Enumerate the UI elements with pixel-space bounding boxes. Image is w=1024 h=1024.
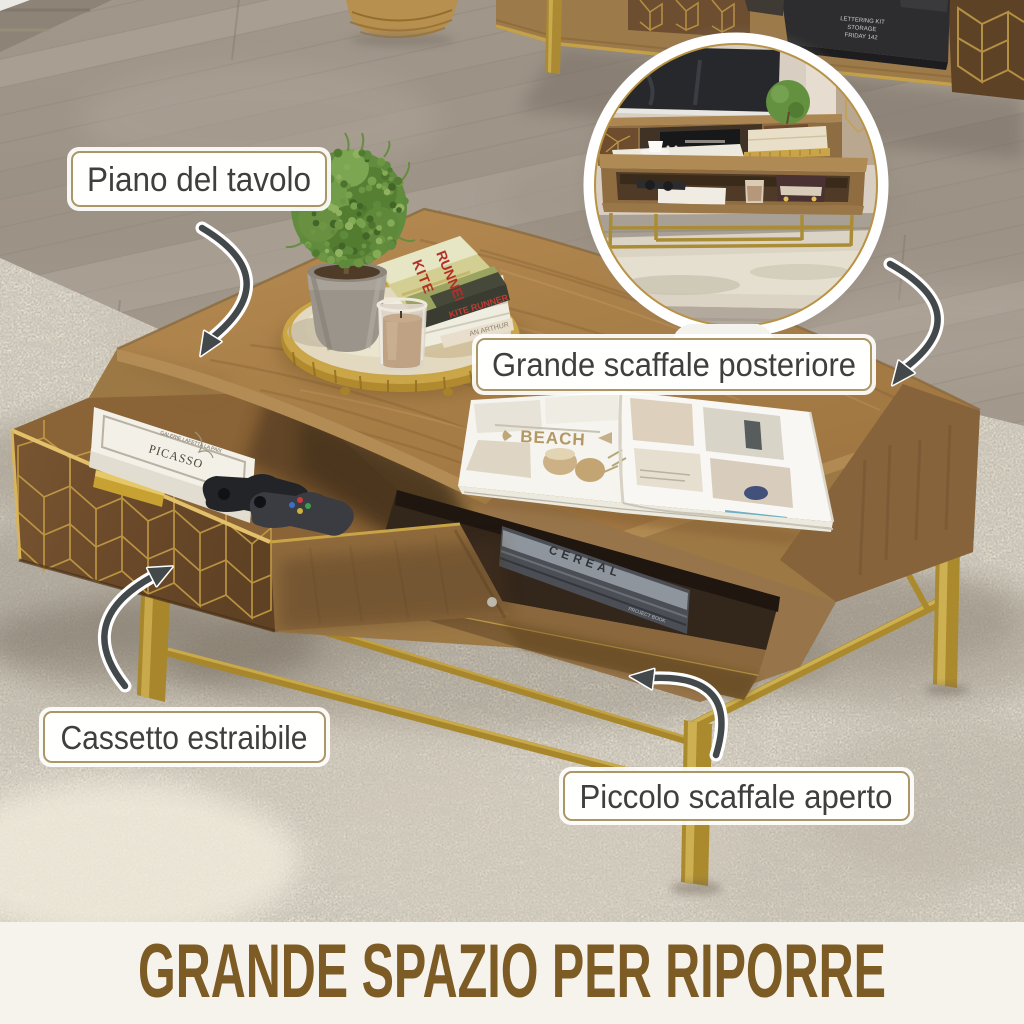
svg-text:Piano del tavolo: Piano del tavolo — [87, 161, 311, 199]
svg-text:BEACH: BEACH — [520, 427, 586, 449]
svg-text:Piccolo scaffale aperto: Piccolo scaffale aperto — [580, 778, 893, 815]
svg-text:GRANDE SPAZIO PER RIPORRE: GRANDE SPAZIO PER RIPORRE — [138, 929, 886, 1014]
svg-text:Cassetto estraibile: Cassetto estraibile — [61, 719, 308, 756]
svg-text:Grande scaffale posteriore: Grande scaffale posteriore — [492, 346, 856, 383]
